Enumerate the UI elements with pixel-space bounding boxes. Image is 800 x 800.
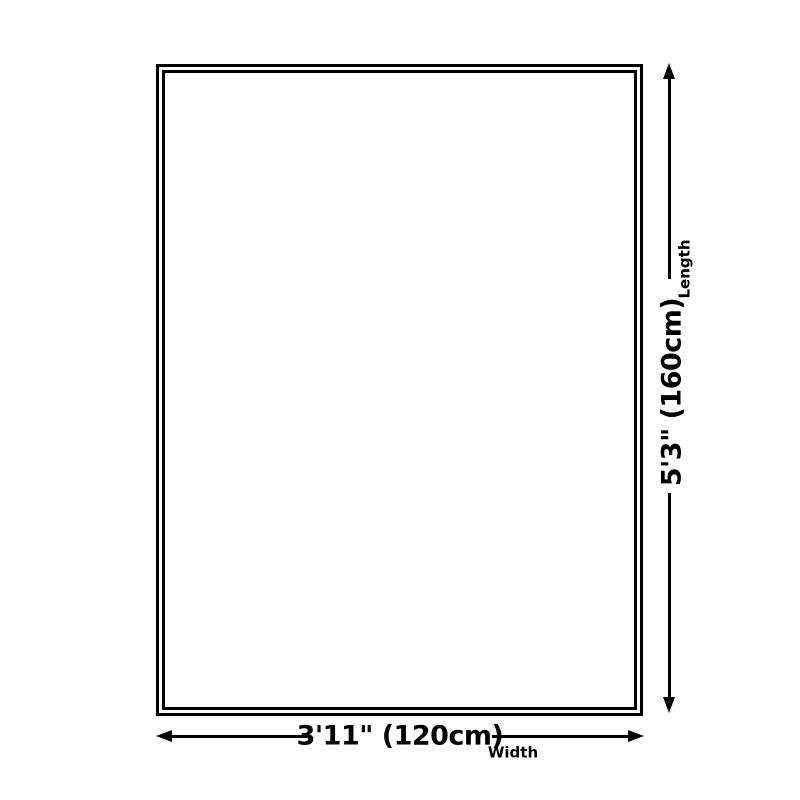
length-arrow-shaft-lower [668, 493, 671, 702]
product-outline [156, 64, 643, 716]
arrow-down-icon [663, 697, 675, 713]
width-label: Width [488, 746, 538, 761]
length-value: 5'3" (160cm) [659, 298, 686, 486]
length-label: Length [678, 240, 693, 299]
width-arrow-shaft-right [492, 735, 632, 738]
width-value: 3'11" (120cm) [297, 723, 504, 750]
product-inner-border [162, 70, 637, 710]
size-diagram: Length 5'3" (160cm) 3'11" (120cm) Width [0, 0, 800, 800]
width-arrow-shaft-left [170, 735, 308, 738]
arrow-right-icon [628, 730, 644, 742]
length-arrow-shaft-upper [668, 77, 671, 279]
